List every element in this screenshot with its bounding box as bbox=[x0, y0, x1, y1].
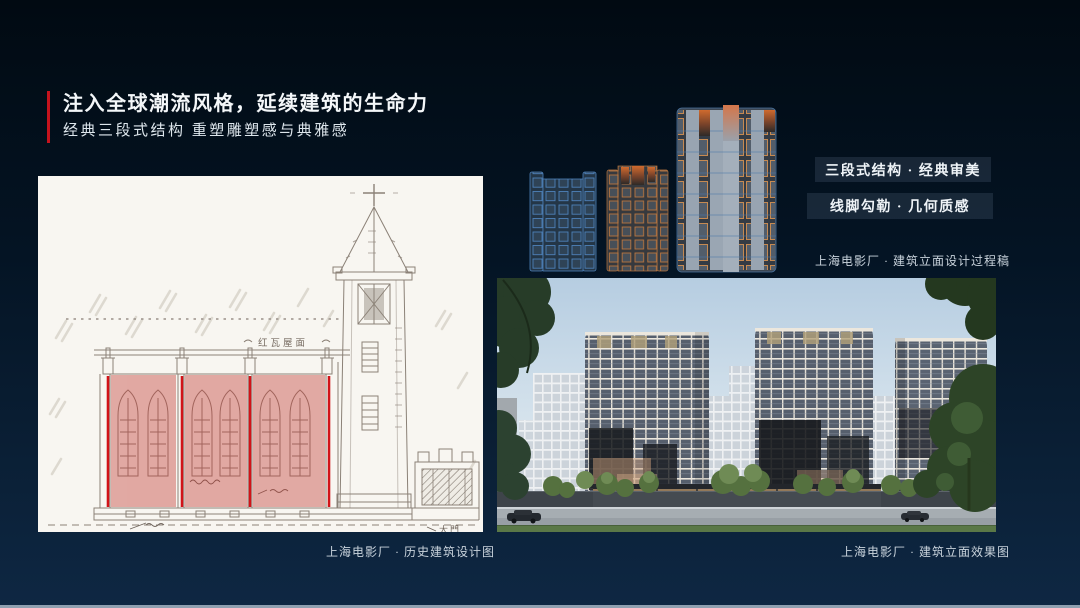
tag-structure: 三段式结构 · 经典审美 bbox=[815, 157, 991, 182]
process-renders bbox=[505, 95, 795, 277]
facade-study-large bbox=[677, 105, 776, 272]
massing-study-blue bbox=[530, 172, 596, 271]
highlight-blocks bbox=[111, 375, 325, 507]
tag-moulding: 线脚勾勒 · 几何质感 bbox=[807, 193, 993, 219]
caption-historical: 上海电影厂 · 历史建筑设计图 bbox=[326, 543, 495, 560]
caption-process: 上海电影厂 · 建筑立面设计过程稿 bbox=[815, 252, 1010, 269]
roof-annotation: 红瓦屋面 bbox=[258, 337, 308, 349]
massing-study-bronze bbox=[607, 166, 668, 271]
slide-title: 注入全球潮流风格，延续建筑的生命力 bbox=[63, 87, 429, 116]
accent-bar bbox=[47, 91, 50, 143]
historical-drawing: 红瓦屋面 bbox=[38, 176, 483, 532]
gate-annotation: 大門 bbox=[439, 524, 461, 532]
facade-render bbox=[497, 278, 996, 532]
caption-render: 上海电影厂 · 建筑立面效果图 bbox=[841, 543, 1010, 560]
slide-background: 注入全球潮流风格，延续建筑的生命力 经典三段式结构 重塑雕塑感与典雅感 三段式结… bbox=[0, 0, 1080, 608]
slide-subtitle: 经典三段式结构 重塑雕塑感与典雅感 bbox=[63, 119, 349, 140]
